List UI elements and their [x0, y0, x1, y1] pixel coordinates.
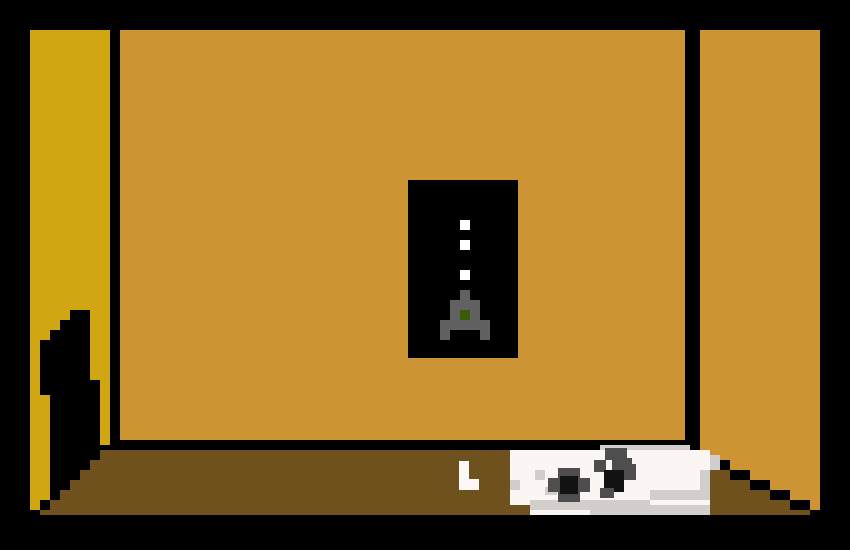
rocket-window	[460, 310, 470, 320]
rocket-leg-left	[440, 330, 450, 340]
right-wall	[700, 30, 820, 510]
rocket-leg-right	[480, 330, 490, 340]
rocket-base	[440, 320, 490, 330]
newspaper-shading-bottom	[590, 505, 710, 515]
newspaper[interactable]	[510, 445, 720, 515]
flight-path-dot-1	[460, 220, 470, 230]
game-screen	[0, 0, 850, 550]
game-scene	[0, 0, 850, 550]
flight-path-dot-3	[460, 270, 470, 280]
rocket-nose	[460, 290, 470, 300]
chalk-body[interactable]	[459, 461, 469, 490]
newspaper-shading-right-edge	[710, 455, 720, 470]
newspaper-print-left-core	[560, 476, 578, 494]
newspaper-shading-left-2	[535, 470, 545, 480]
newspaper-shading-fold-right	[650, 490, 710, 500]
newspaper-shading-left-1	[510, 480, 520, 490]
rocket-poster[interactable]	[408, 180, 518, 358]
back-wall	[120, 30, 685, 440]
newspaper-print-right-bottom	[600, 488, 614, 498]
newspaper-print-right-edge	[624, 464, 636, 480]
flight-path-dot-2	[460, 240, 470, 250]
chalk-foot[interactable]	[469, 479, 479, 490]
poster-background[interactable]	[408, 180, 518, 358]
